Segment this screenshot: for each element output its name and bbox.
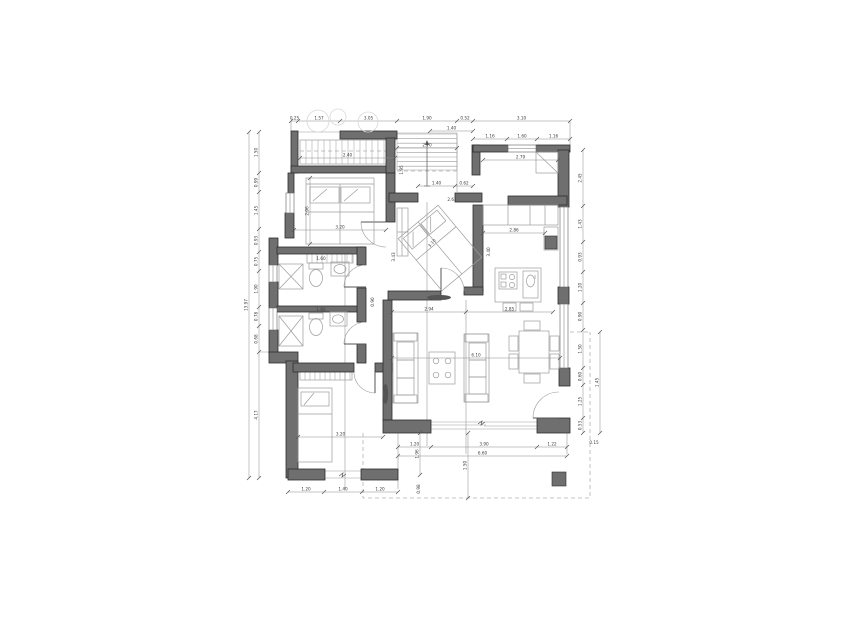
- bedroom1-door: [361, 222, 386, 247]
- kitchen-island-part: [501, 282, 506, 287]
- door-arc: [533, 392, 559, 418]
- toilet: [309, 313, 323, 336]
- dimension-label: 2.40: [343, 152, 353, 157]
- dimension-chain: 6.10: [390, 352, 562, 360]
- wall-segment: [559, 368, 570, 386]
- dimension-label: 2.61: [447, 197, 457, 202]
- dimension-label: 0.68: [253, 334, 258, 344]
- sofa: [464, 334, 489, 402]
- tv: [383, 384, 388, 404]
- sofa: [393, 333, 418, 403]
- walls: [269, 131, 570, 480]
- dimension-label: 1.50: [462, 461, 467, 471]
- construction-lines: [259, 121, 570, 489]
- wall-segment: [357, 344, 366, 363]
- dimension-label: 1.20: [375, 486, 385, 491]
- dimension-label: 2.79: [516, 154, 526, 159]
- sink: [331, 262, 349, 276]
- shower: [279, 316, 303, 346]
- sofa-part: [397, 378, 414, 395]
- wall-segment: [383, 420, 431, 433]
- dining-table-part: [524, 321, 540, 330]
- screenshot: 0.251.573.051.900.523.101.401.161.601.16…: [0, 0, 851, 625]
- dimension-chain: 1.500.991.450.930.751.900.780.684.17: [253, 130, 261, 480]
- wall-segment: [537, 418, 570, 433]
- wall-segment: [291, 166, 394, 173]
- toilet-part: [310, 319, 323, 336]
- dimension-label: 1.60: [316, 307, 326, 312]
- dimension-label: 6.10: [471, 352, 481, 357]
- dimension-label: 1.45: [594, 378, 599, 388]
- windows: [269, 145, 568, 368]
- double-bed-part: [310, 187, 339, 203]
- dimension-chain: 2.451.430.931.200.901.500.601.250.53: [577, 148, 585, 435]
- dimension-label: 1.43: [577, 219, 582, 229]
- dining-table-part: [550, 354, 559, 369]
- double-bed-rotated: [398, 205, 482, 291]
- dimension-label: 1.57: [314, 115, 324, 120]
- dimension-label: 1.90: [422, 115, 432, 120]
- center-bedroom-door: [441, 268, 464, 291]
- wall-segment: [269, 330, 278, 354]
- terrace-column-part: [552, 472, 566, 486]
- dimension-label: 2.85: [505, 306, 515, 311]
- wall-segment: [361, 469, 398, 480]
- toilet-part: [309, 313, 323, 319]
- dimension-label: 1.40: [447, 125, 457, 130]
- kitchen-island-part: [520, 303, 533, 311]
- dimension-label: 1.40: [338, 486, 348, 491]
- entry-closet: [536, 152, 558, 173]
- dimension-chain: 1.96: [414, 431, 422, 477]
- single-bed: [298, 388, 332, 462]
- threshold-mark: [478, 421, 485, 425]
- dimension-label: 2.86: [509, 227, 519, 232]
- sink-part: [333, 315, 344, 323]
- wall-segment: [558, 287, 569, 304]
- dimension-chain: 1.400.62: [416, 180, 475, 188]
- dining-table-part: [509, 354, 518, 369]
- terrace-door: [533, 392, 559, 418]
- sofa-part: [469, 360, 486, 377]
- wall-segment: [473, 145, 508, 152]
- dining-table-part: [519, 331, 549, 373]
- dimension-label: 3.20: [336, 431, 346, 436]
- wall-segment: [285, 213, 294, 238]
- dining-table: [509, 321, 559, 383]
- dimension-label: 1.60: [316, 256, 326, 261]
- coffee-table-part: [429, 352, 455, 384]
- wall-segment: [288, 173, 294, 193]
- double-bed-rotated-part: [416, 227, 456, 260]
- dimension-label: 0.99: [253, 178, 258, 188]
- wall-segment: [357, 288, 366, 322]
- kitchen-counter-part: [483, 205, 558, 225]
- dimension-label: 1.20: [410, 441, 420, 446]
- dimension-label: 0.93: [253, 236, 258, 246]
- dimension-label: 2.70: [422, 142, 432, 147]
- coffee-table: [429, 352, 455, 384]
- double-bed-part: [341, 187, 370, 203]
- dimension-label: 3.90: [479, 441, 489, 446]
- toilet-part: [310, 270, 323, 287]
- dining-table-part: [509, 336, 518, 351]
- dimension-label: 3.43: [391, 252, 396, 262]
- wall-segment: [269, 282, 278, 308]
- double-bed-rotated-part: [423, 217, 438, 233]
- dimension-label: 1.16: [485, 133, 495, 138]
- dimension-label: 1.45: [253, 206, 258, 216]
- dimension-chain: 13.97: [243, 130, 251, 480]
- dimension-chain: 1.201.401.20: [286, 486, 400, 494]
- wall-segment: [288, 469, 325, 480]
- dimension-label: 1.20: [577, 283, 582, 293]
- single-bed-part: [304, 393, 314, 405]
- dimension-label: 1.90: [253, 284, 258, 294]
- dining-table-part: [550, 336, 559, 351]
- double-bed-part: [344, 189, 358, 201]
- entry-closet-part: [536, 152, 558, 173]
- dimension-label: 1.16: [549, 133, 559, 138]
- dimension-chain: 2.96: [304, 176, 312, 246]
- dimension-label: 1.20: [301, 486, 311, 491]
- oven-column-part: [545, 236, 557, 249]
- wall-segment: [293, 363, 354, 372]
- single-bed-part: [298, 388, 332, 462]
- dimension-label: 0.93: [577, 252, 582, 262]
- dimension-label: 0.15: [589, 440, 599, 445]
- wall-segment: [357, 247, 366, 265]
- terrace-column: [552, 472, 566, 486]
- dimension-label: 1.60: [517, 133, 527, 138]
- dimension-label: 13.97: [243, 299, 248, 311]
- dimension-label: 1.50: [253, 148, 258, 158]
- dimension-label: 2.96: [304, 206, 309, 216]
- dimension-chain: 1.203.901.22: [396, 441, 569, 449]
- dimension-label: 3.40: [486, 247, 491, 257]
- dimension-label: 0.78: [253, 312, 258, 322]
- dimension-chain: 2.79: [481, 154, 560, 162]
- dimension-label: 0.60: [577, 372, 582, 382]
- kitchen-island-part: [501, 274, 506, 279]
- toilet-part: [309, 263, 323, 269]
- dimension-label: 1.95: [399, 165, 404, 175]
- kitchen-counter: [483, 205, 558, 225]
- coffee-table-part: [433, 358, 439, 364]
- dimension-label: 6.60: [478, 450, 488, 455]
- kitchen-island-part: [509, 282, 514, 287]
- toilet: [309, 263, 323, 287]
- sink-part: [334, 265, 346, 274]
- dimension-label: 4.17: [253, 410, 258, 420]
- door-arc: [354, 372, 375, 393]
- dining-table-part: [524, 374, 540, 383]
- floor-plan: 0.251.573.051.900.523.101.401.161.601.16…: [0, 0, 851, 625]
- sofa-part: [397, 342, 414, 360]
- dimension-label: 0.53: [577, 421, 582, 431]
- dimension-label: 2.94: [424, 306, 434, 311]
- dimension-label: 1.96: [414, 449, 419, 459]
- dimension-chain: 1.45: [594, 330, 602, 435]
- sofa-part: [397, 360, 414, 378]
- sink: [330, 312, 347, 326]
- dimension-chain: 1.161.601.16: [471, 133, 572, 141]
- sofa-part: [465, 334, 488, 342]
- sofa-part: [394, 333, 417, 341]
- dimension-chain: 6.60: [396, 450, 569, 458]
- sofa-part: [469, 377, 486, 394]
- dimension-label: 1.40: [432, 180, 442, 185]
- door-arc: [441, 268, 464, 291]
- kitchen-island: [495, 268, 541, 311]
- sofa-part: [465, 394, 488, 402]
- door-arc: [361, 222, 386, 247]
- wall-segment: [464, 287, 483, 295]
- coffee-table-part: [445, 358, 451, 364]
- dimension-label: 1.50: [577, 344, 582, 354]
- sofa-part: [394, 395, 417, 403]
- dimension-chain: 2.86: [481, 227, 547, 235]
- wall-segment: [386, 138, 395, 173]
- dimension-chain: 1.40: [428, 125, 475, 133]
- tv: [427, 295, 451, 300]
- kitchen-island-part: [527, 275, 535, 287]
- wall-segment: [389, 193, 418, 202]
- dimension-label: 0.98: [416, 484, 421, 494]
- coffee-table-part: [433, 372, 439, 378]
- vegetation: [307, 109, 378, 132]
- dimension-chain: 3.20: [296, 431, 385, 439]
- tv-part: [383, 384, 388, 404]
- wall-segment: [277, 247, 365, 254]
- wall-segment: [286, 361, 298, 478]
- wall-segment: [508, 196, 567, 205]
- dimension-label: 0.90: [577, 312, 582, 322]
- dimension-chain: 2.942.85: [390, 306, 555, 314]
- oven-column: [544, 227, 558, 250]
- dimension-label: 1.22: [547, 441, 557, 446]
- tv-part: [427, 295, 451, 300]
- dimension-label: 0.90: [370, 297, 375, 307]
- dimension-chain: 2.40: [298, 152, 397, 160]
- kitchen-island-part: [509, 274, 514, 279]
- bedroom2-door: [354, 372, 375, 393]
- wall-segment: [455, 193, 482, 202]
- dimension-label: 0.52: [460, 115, 470, 120]
- double-bed-rotated-part: [418, 222, 462, 274]
- double-bed-part: [313, 189, 327, 201]
- shower: [279, 264, 303, 289]
- dimension-label: 1.25: [577, 397, 582, 407]
- dimension-label: 3.20: [335, 224, 345, 229]
- kitchen-island-part: [495, 268, 541, 302]
- dimension-label: 2.45: [577, 173, 582, 183]
- dimension-label: 0.25: [290, 115, 300, 120]
- sofa-part: [464, 334, 489, 402]
- dimension-label: 3.10: [517, 115, 527, 120]
- dimension-label: 3.05: [364, 115, 374, 120]
- coffee-table-part: [445, 372, 451, 378]
- dimension-label: 0.75: [253, 257, 258, 267]
- dimension-label: 0.62: [459, 180, 469, 185]
